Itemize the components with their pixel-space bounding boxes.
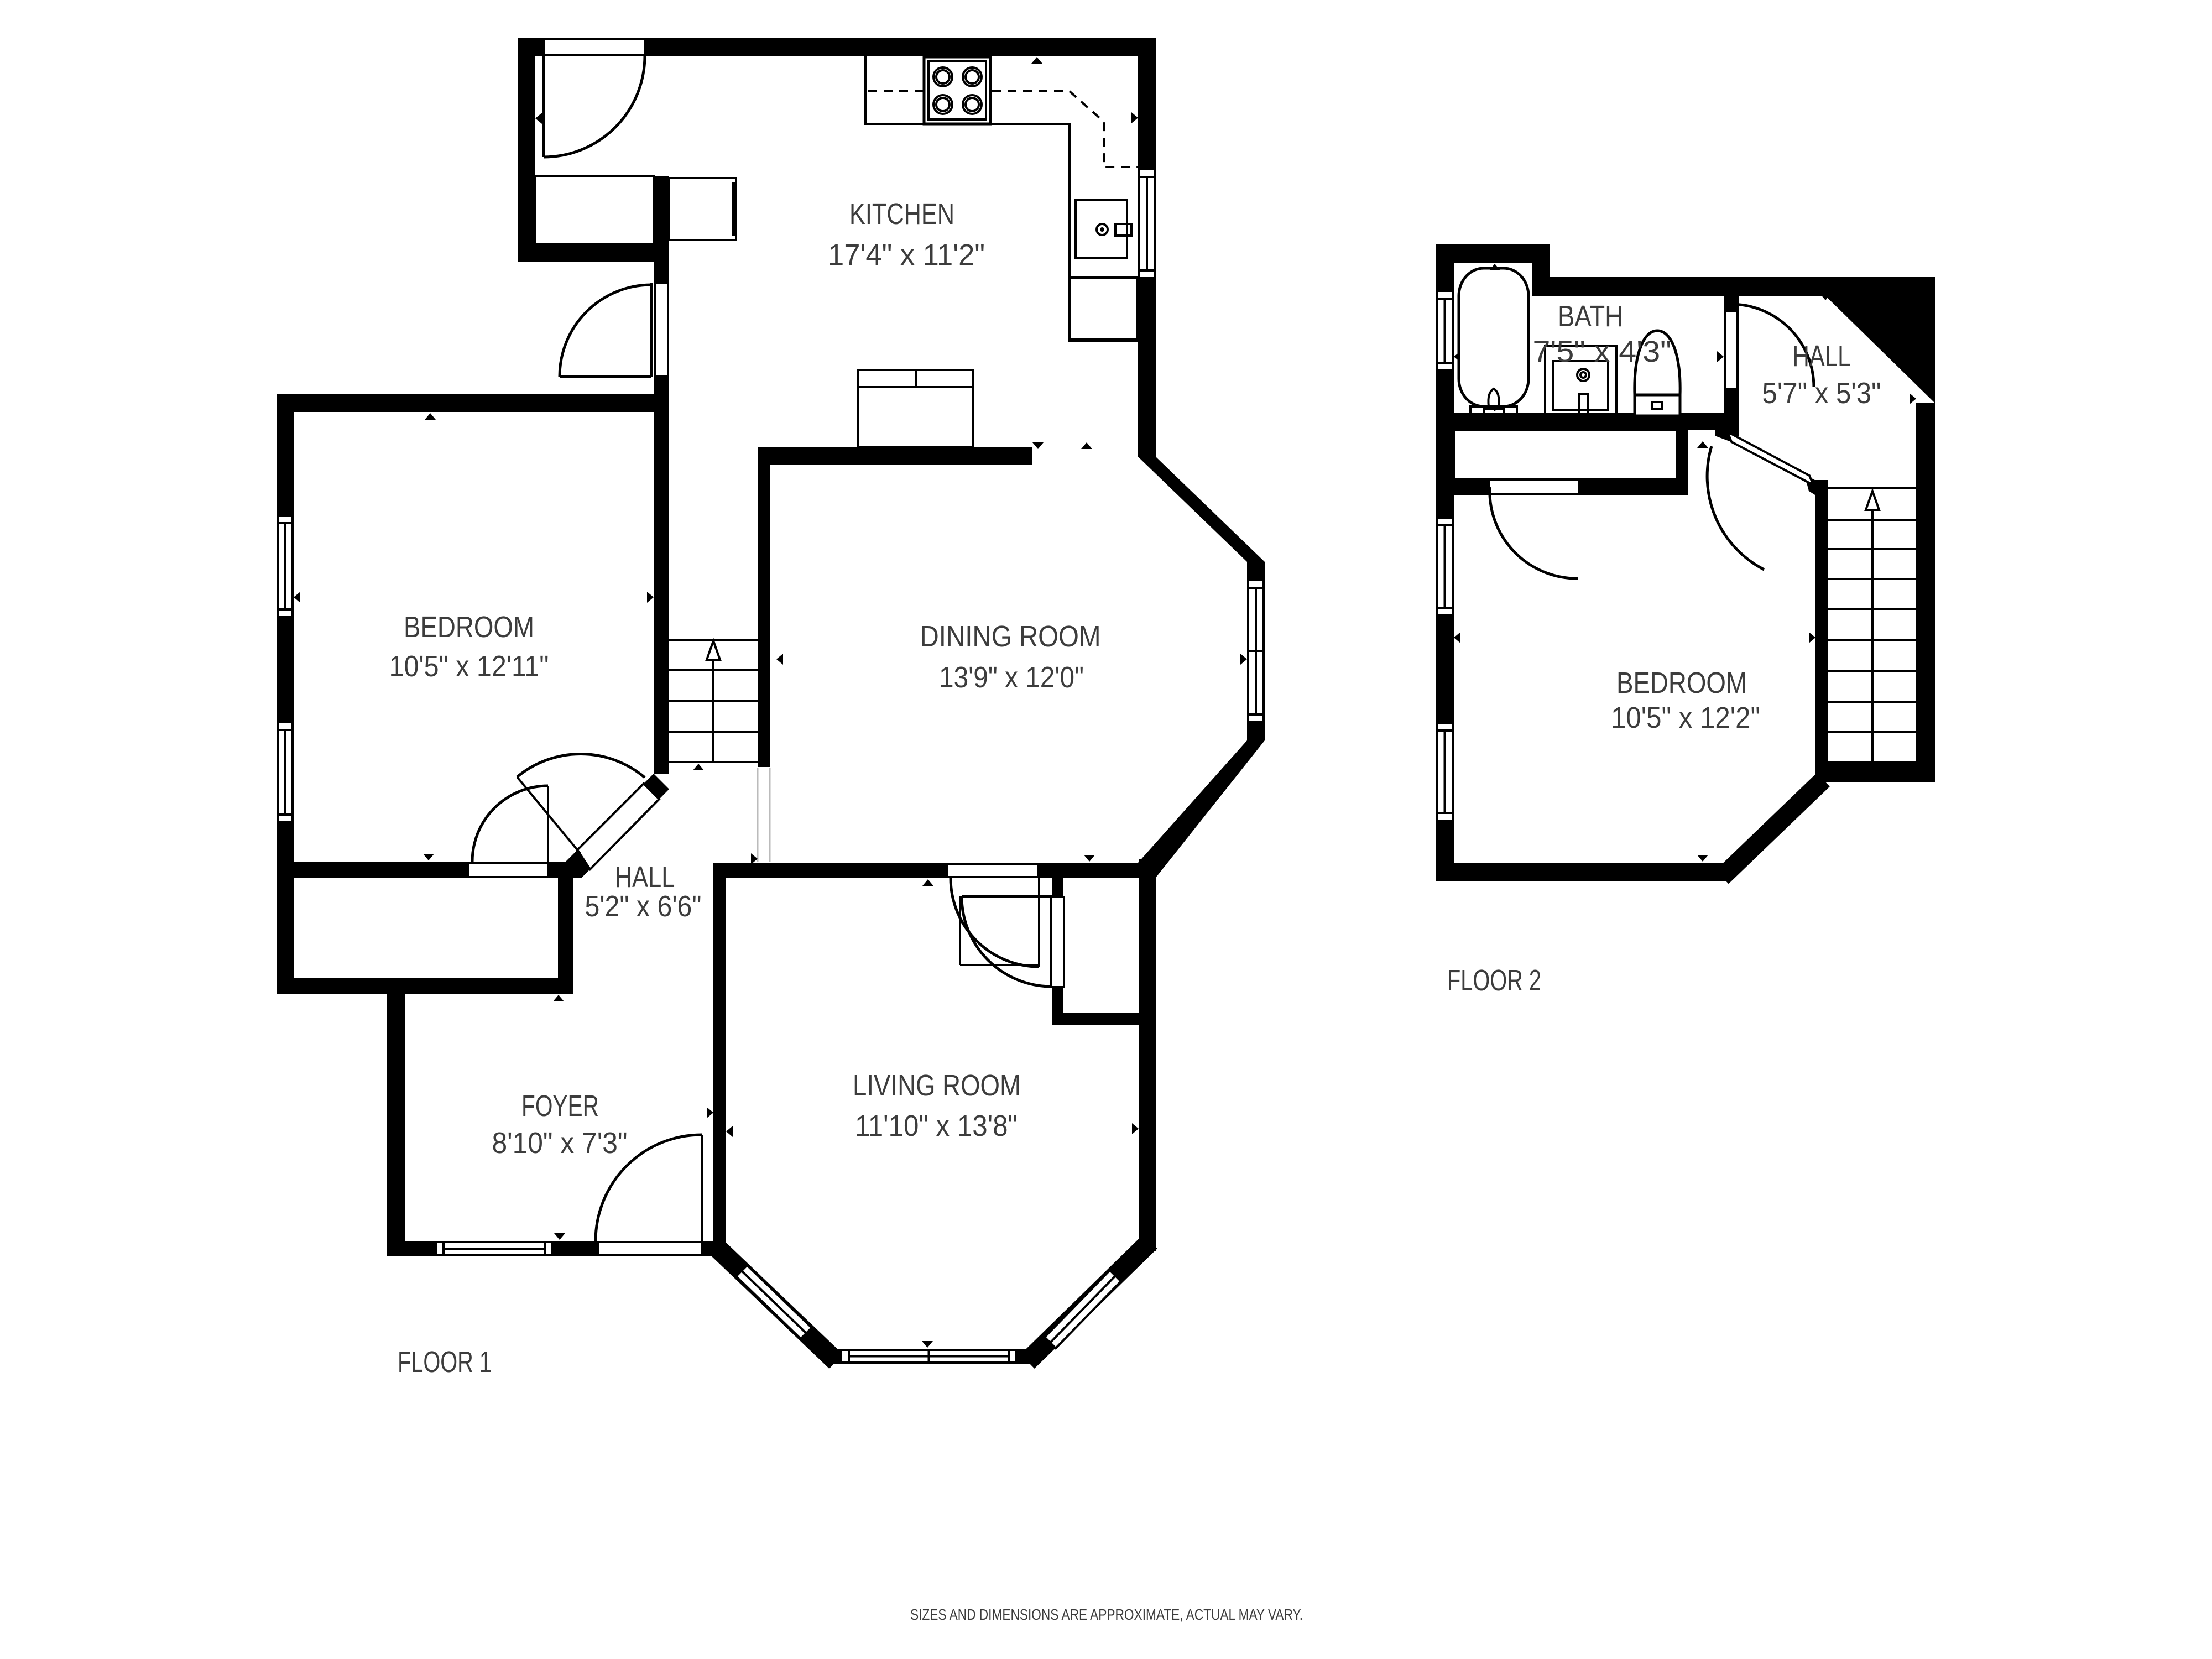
svg-text:10'5" x 12'11": 10'5" x 12'11" [389,650,549,683]
svg-text:DINING ROOM: DINING ROOM [920,620,1101,653]
svg-text:FLOOR 1: FLOOR 1 [398,1345,492,1379]
svg-text:5'7" x 5'3": 5'7" x 5'3" [1762,377,1881,410]
svg-text:13'9" x 12'0": 13'9" x 12'0" [939,661,1084,694]
svg-text:HALL: HALL [615,860,675,894]
svg-text:5'2" x 6'6": 5'2" x 6'6" [585,890,702,923]
svg-text:HALL: HALL [1793,340,1851,373]
svg-text:11'10" x 13'8": 11'10" x 13'8" [855,1109,1018,1142]
svg-text:7'5" x 4'3": 7'5" x 4'3" [1533,335,1672,368]
svg-text:FLOOR 2: FLOOR 2 [1447,964,1541,997]
svg-text:FOYER: FOYER [521,1089,599,1123]
svg-text:BATH: BATH [1558,300,1623,333]
svg-text:BEDROOM: BEDROOM [404,611,534,644]
svg-text:10'5" x 12'2": 10'5" x 12'2" [1611,701,1760,734]
svg-text:LIVING ROOM: LIVING ROOM [853,1069,1021,1102]
svg-text:SIZES AND DIMENSIONS ARE APPRO: SIZES AND DIMENSIONS ARE APPROXIMATE, AC… [910,1606,1303,1623]
svg-text:17'4" x 11'2": 17'4" x 11'2" [828,238,985,272]
svg-text:BEDROOM: BEDROOM [1616,666,1747,700]
svg-text:8'10" x 7'3": 8'10" x 7'3" [492,1126,628,1160]
svg-text:KITCHEN: KITCHEN [849,197,954,231]
